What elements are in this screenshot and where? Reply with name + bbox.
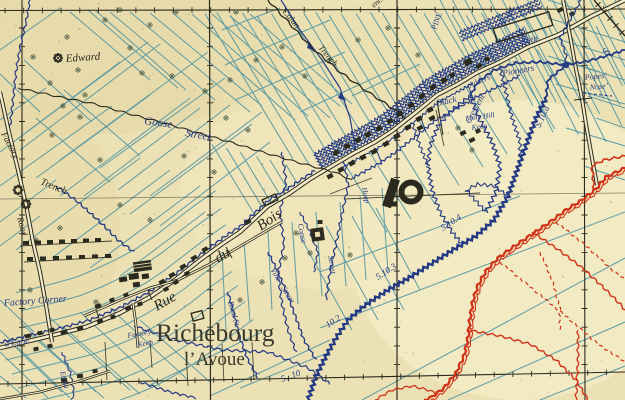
svg-text:Edward: Edward bbox=[64, 51, 101, 65]
svg-text:l’Avoue: l’Avoue bbox=[184, 349, 245, 370]
svg-text:Richebourg: Richebourg bbox=[156, 318, 275, 347]
